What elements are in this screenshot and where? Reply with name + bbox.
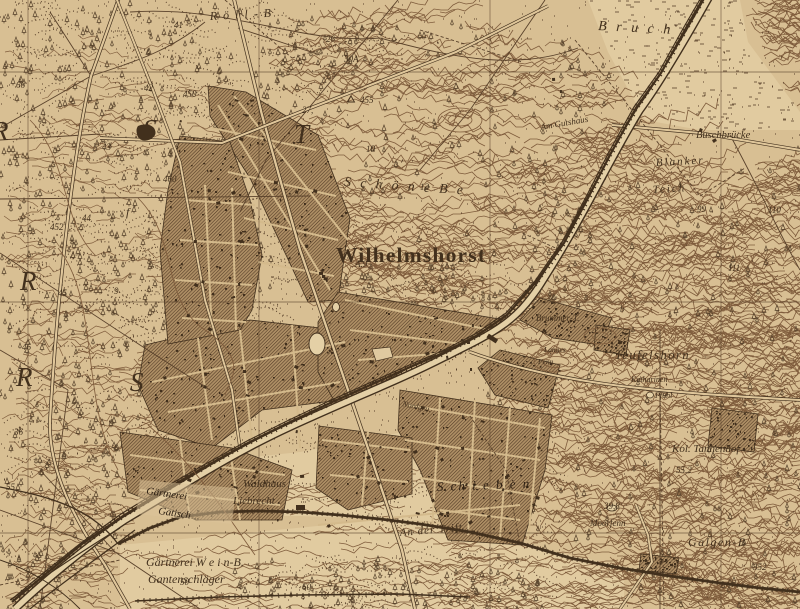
- svg-text:55: 55: [6, 482, 16, 492]
- svg-text:44: 44: [82, 213, 92, 223]
- svg-text:36: 36: [13, 427, 24, 437]
- svg-text:A.9: A.9: [354, 259, 368, 269]
- svg-text:b: b: [620, 304, 625, 314]
- svg-text:Waldhaus: Waldhaus: [243, 478, 286, 490]
- svg-text:352: 352: [752, 562, 767, 572]
- svg-text:39,8: 39,8: [603, 501, 620, 511]
- svg-text:Gärtnerei W e i n-B.: Gärtnerei W e i n-B.: [146, 555, 244, 569]
- svg-text:Buschbrücke: Buschbrücke: [696, 130, 751, 141]
- svg-text:Teufelshorn: Teufelshorn: [615, 348, 690, 362]
- svg-text:26: 26: [326, 34, 336, 44]
- svg-text:10: 10: [366, 144, 376, 154]
- svg-text:43: 43: [102, 142, 112, 152]
- svg-text:R: R: [15, 362, 33, 392]
- svg-text:30A: 30A: [343, 54, 359, 64]
- svg-text:Moorfenn: Moorfenn: [589, 518, 626, 528]
- svg-text:R: R: [0, 116, 9, 146]
- svg-text:Galgen-B: Galgen-B: [688, 535, 747, 549]
- svg-text:55,2: 55,2: [676, 465, 692, 475]
- svg-text:452: 452: [50, 222, 64, 232]
- svg-text:50: 50: [180, 577, 190, 587]
- svg-text:66: 66: [16, 80, 26, 90]
- svg-text:450: 450: [183, 89, 197, 99]
- svg-text:111: 111: [728, 263, 740, 273]
- svg-text:60: 60: [302, 582, 312, 592]
- svg-text:Langes: Langes: [543, 345, 566, 354]
- svg-text:41: 41: [174, 20, 183, 30]
- svg-text:Blanker: Blanker: [656, 154, 705, 169]
- svg-text:9: 9: [114, 286, 119, 296]
- svg-text:110: 110: [768, 205, 781, 215]
- svg-text:42: 42: [144, 83, 154, 93]
- svg-text:Fenn: Fenn: [537, 357, 554, 366]
- svg-text:Pfuhl: Pfuhl: [654, 391, 673, 400]
- svg-text:46: 46: [22, 342, 32, 352]
- svg-text:45: 45: [58, 288, 68, 298]
- svg-text:Teich: Teich: [653, 182, 687, 196]
- svg-text:T: T: [294, 119, 311, 149]
- svg-text:Liebrecht: Liebrecht: [232, 495, 276, 507]
- svg-text:Katharinen: Katharinen: [630, 375, 667, 384]
- svg-text:S: S: [130, 367, 144, 397]
- svg-text:12: 12: [420, 182, 430, 192]
- svg-text:99: 99: [697, 204, 707, 214]
- svg-text:S: S: [143, 114, 157, 144]
- svg-text:Brummer-T.: Brummer-T.: [536, 313, 579, 323]
- svg-text:455: 455: [360, 95, 374, 105]
- svg-text:R: R: [19, 266, 37, 296]
- svg-text:460: 460: [163, 174, 177, 184]
- svg-text:Kol. Tannenhof: Kol. Tannenhof: [671, 443, 741, 455]
- svg-text:27,: 27,: [302, 105, 313, 115]
